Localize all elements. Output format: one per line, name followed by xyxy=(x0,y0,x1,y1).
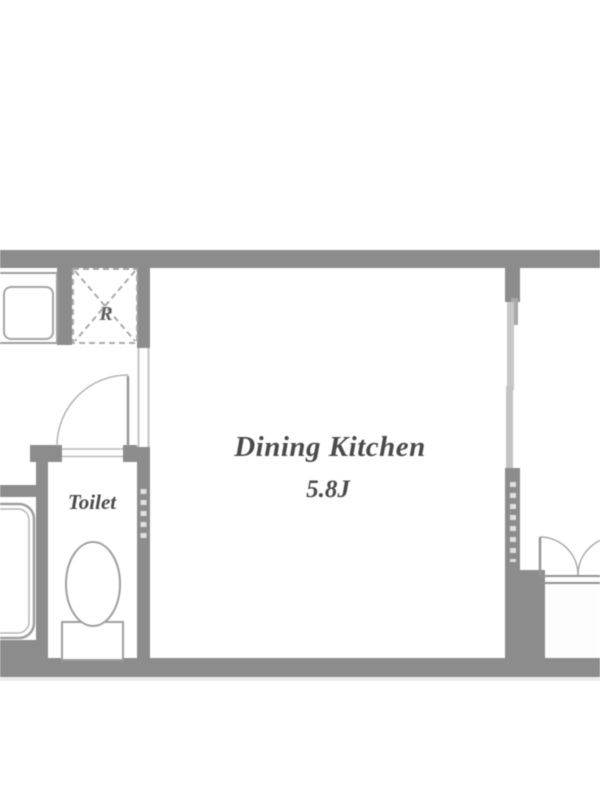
toilet-bowl-icon xyxy=(62,542,123,660)
toilet-left-wall xyxy=(36,447,48,661)
toilet-tank xyxy=(62,622,123,660)
sliding-door-panel xyxy=(506,386,513,468)
washer-pan-outline xyxy=(0,273,57,343)
closet-side-wall-stub xyxy=(505,570,545,661)
bath-top-wall xyxy=(0,485,37,497)
hall-dk-wall-upper xyxy=(137,250,150,348)
hall-dk-wall-lower xyxy=(137,447,150,661)
closet-interior xyxy=(545,584,600,658)
bottom-wall-shadow xyxy=(0,677,600,681)
dining-kitchen-label: Dining Kitchen xyxy=(233,431,426,463)
door-swing-arc xyxy=(57,375,128,446)
washing-machine-icon xyxy=(0,273,57,343)
toilet-top-wall-right xyxy=(123,445,137,462)
floorplan-page: R Dining Kitchen 5.8J Toilet xyxy=(0,0,600,800)
refrigerator-label: R xyxy=(98,303,112,325)
hall-dk-opening xyxy=(139,348,149,447)
sliding-door-icon xyxy=(506,298,518,468)
dk-right-wall-upper xyxy=(505,250,520,302)
toilet-label: Toilet xyxy=(68,490,117,514)
laundry-right-wall xyxy=(57,260,72,345)
toilet-bowl xyxy=(66,542,120,626)
bathtub-icon xyxy=(0,504,34,638)
sliding-door-panel xyxy=(507,302,514,390)
toilet-door-threshold xyxy=(62,449,123,457)
closet-doors-icon xyxy=(540,537,600,583)
washer-body-outline xyxy=(4,287,53,339)
dining-kitchen-size-label: 5.8J xyxy=(306,476,351,503)
toilet-top-wall-left xyxy=(30,445,62,462)
bathtub-inner xyxy=(0,509,29,633)
closet-door-arc xyxy=(540,537,578,575)
closet-door-arc xyxy=(578,537,600,575)
floorplan-drawing: R Dining Kitchen 5.8J Toilet xyxy=(0,0,600,800)
swing-door-icon xyxy=(57,375,128,446)
